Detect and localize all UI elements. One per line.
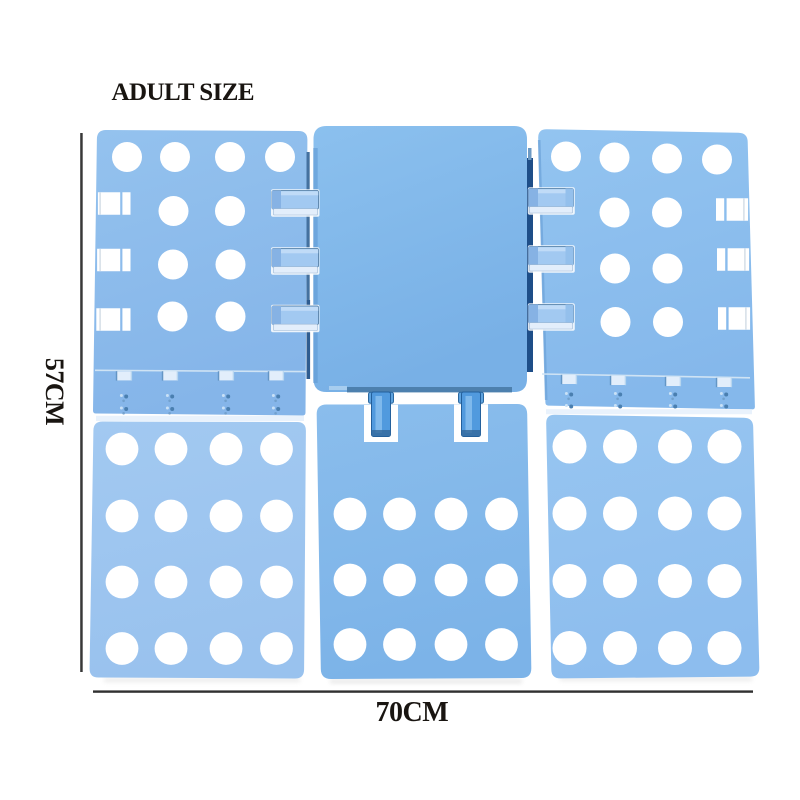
svg-text:57CM: 57CM xyxy=(40,358,69,425)
svg-text:70CM: 70CM xyxy=(375,697,448,728)
svg-text:ADULT SIZE: ADULT SIZE xyxy=(112,79,255,106)
